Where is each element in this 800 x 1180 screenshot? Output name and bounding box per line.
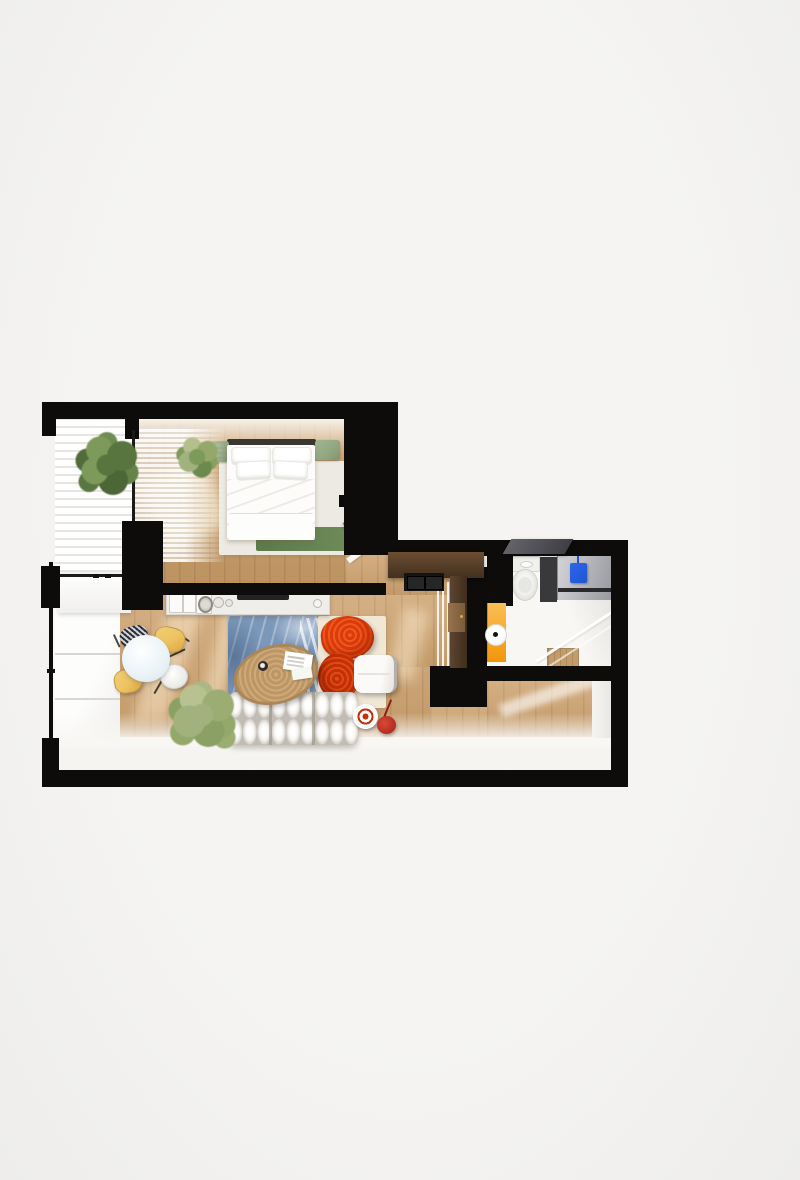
- window-frame-tick: [47, 669, 55, 673]
- sofa-seam: [312, 692, 315, 745]
- cabinet-drawer: [425, 576, 443, 590]
- washer-icon: [198, 596, 213, 613]
- bed-foot-blanket: [229, 513, 313, 540]
- blue-towel: [570, 563, 587, 583]
- window-sill-radiator: [58, 574, 131, 613]
- floor-plan: [0, 0, 800, 1180]
- wall: [611, 540, 628, 682]
- sink-basin: [213, 597, 224, 608]
- laundry-column-panel: [540, 557, 557, 602]
- kitchen-cabinet: [183, 594, 196, 613]
- white-ottoman: [354, 655, 397, 693]
- round-dining-table: [122, 635, 170, 682]
- potted-plant-balcony: [97, 455, 118, 476]
- window-frame-tick: [105, 574, 111, 578]
- coffee-cup: [258, 661, 268, 671]
- cabinet-drawer: [407, 576, 425, 590]
- floor-lamp-white: [353, 704, 378, 729]
- potted-plant-living: [191, 704, 213, 726]
- window-frame: [49, 562, 53, 744]
- pillow: [273, 460, 309, 481]
- door-frame-mark: [339, 495, 344, 507]
- wall: [42, 402, 354, 419]
- potted-plant-bedroom: [189, 449, 205, 465]
- wall: [162, 583, 386, 595]
- window-frame-tick: [93, 574, 99, 578]
- wall: [344, 402, 398, 555]
- wall: [42, 738, 59, 787]
- toilet-paper-roll: [485, 624, 507, 646]
- kitchen-cabinet: [169, 594, 183, 613]
- wall-shelf: [503, 539, 574, 554]
- double-bed: [227, 445, 315, 540]
- window-frame: [132, 430, 135, 525]
- countertop-edge: [558, 588, 613, 592]
- wardrobe-door: [448, 603, 465, 632]
- pillow: [236, 460, 272, 481]
- wall: [430, 666, 487, 707]
- wall: [122, 521, 163, 610]
- wall: [42, 770, 628, 787]
- shoe-cabinet: [404, 573, 444, 591]
- floor-lamp-red: [377, 716, 396, 734]
- wall: [467, 567, 487, 668]
- counter-knob: [313, 599, 322, 608]
- wall: [487, 550, 513, 606]
- wall: [611, 666, 628, 787]
- wall: [42, 402, 56, 436]
- headboard-cushion-right: [315, 440, 340, 460]
- sink-drain: [225, 599, 233, 607]
